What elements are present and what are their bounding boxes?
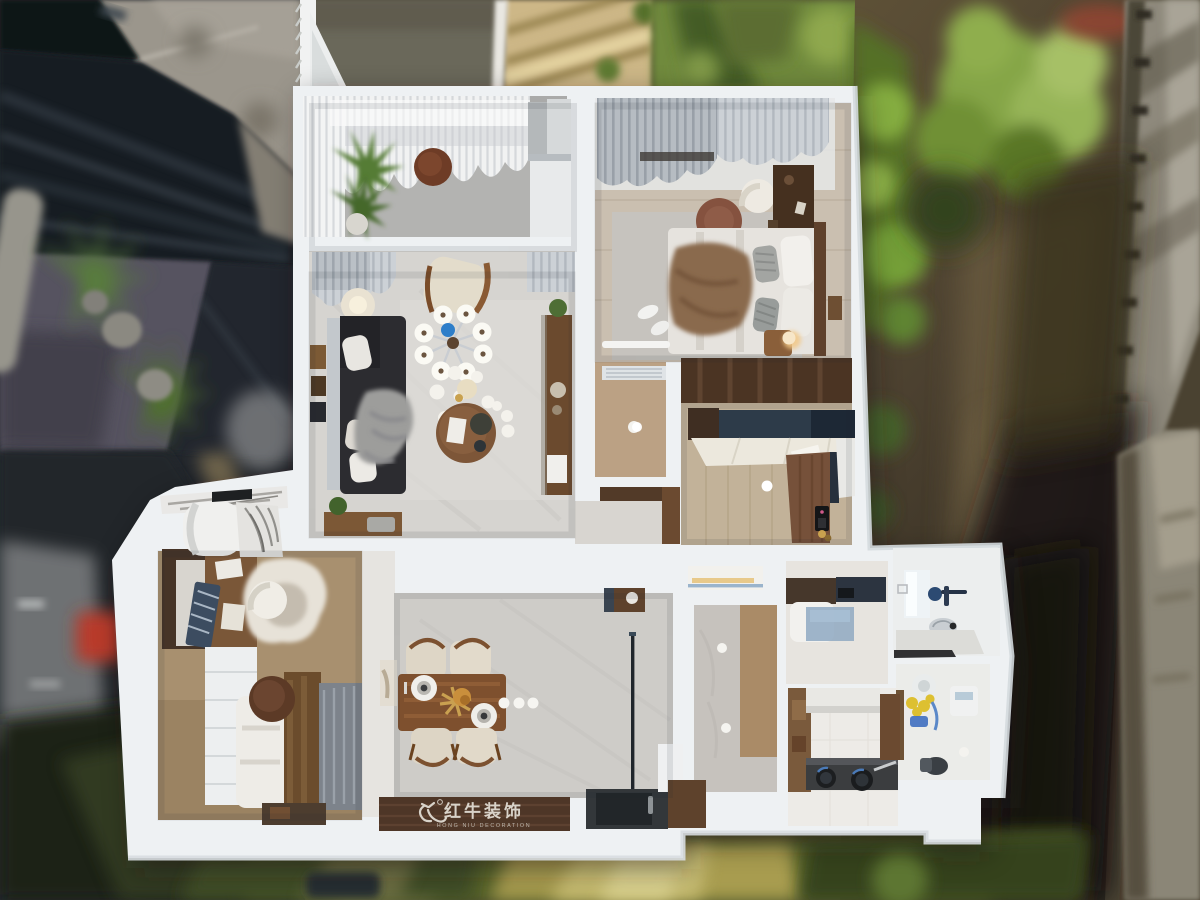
svg-text:红牛装饰: 红牛装饰 <box>444 801 524 821</box>
svg-text:HONG NIU DECORATION: HONG NIU DECORATION <box>437 823 531 829</box>
